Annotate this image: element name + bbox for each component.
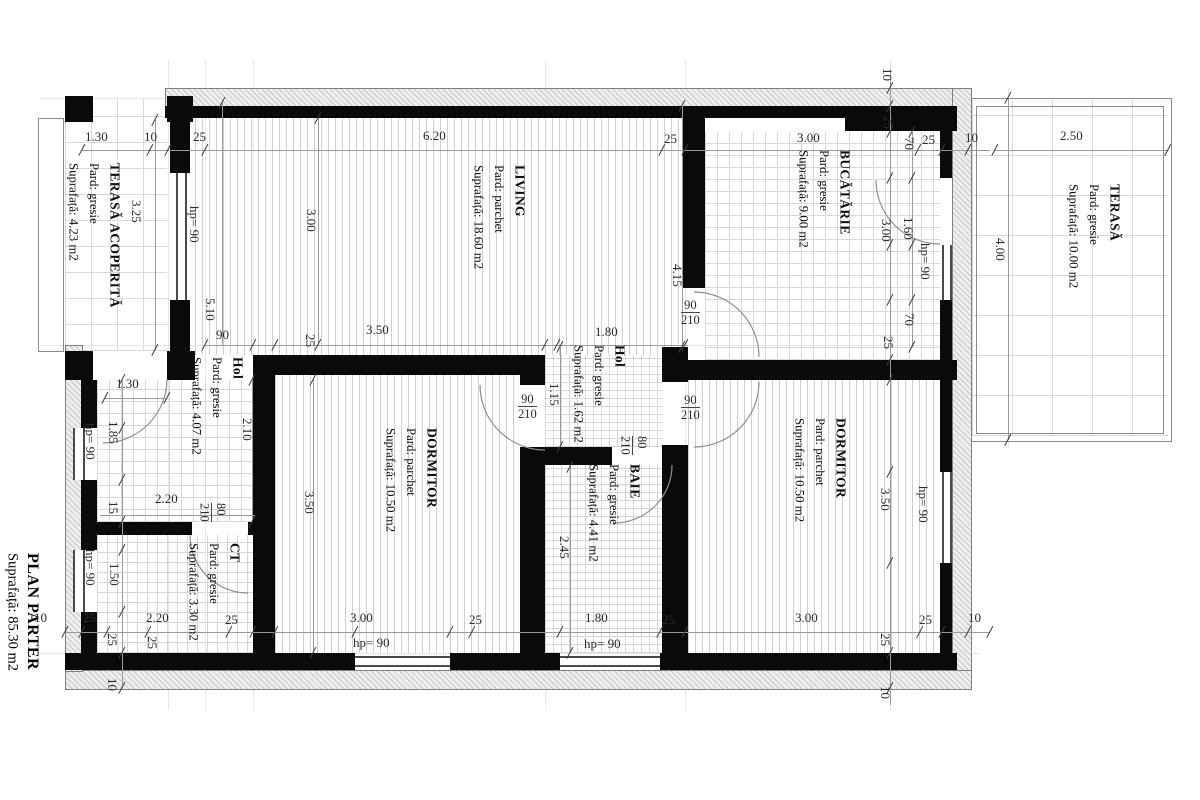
dim-tick bbox=[656, 626, 663, 638]
dim-tick bbox=[991, 144, 998, 156]
door-width: 90 bbox=[681, 393, 700, 407]
dim-label: hp= 90 bbox=[584, 637, 621, 650]
dim-label: 70 bbox=[903, 137, 916, 150]
dim-tick bbox=[908, 341, 915, 353]
dim-tick bbox=[248, 374, 255, 386]
dim-tick bbox=[916, 626, 923, 638]
dim-tick bbox=[151, 344, 158, 356]
dim-tick bbox=[681, 144, 688, 156]
dim-tick bbox=[938, 626, 945, 638]
dim-tick bbox=[118, 516, 125, 528]
dim-label: hp= 90 bbox=[919, 243, 932, 280]
dim-tick bbox=[151, 114, 158, 126]
dim-label: hp= 90 bbox=[84, 423, 97, 460]
dim-tick bbox=[681, 626, 688, 638]
dim-label: 10 bbox=[968, 611, 981, 624]
dim-tick bbox=[886, 100, 893, 112]
dim-tick bbox=[118, 606, 125, 618]
floor-plan-canvas: TERASĂ ACOPERITĂ Pard: gresie Suprafață:… bbox=[0, 0, 1200, 800]
dim-label: 70 bbox=[903, 313, 916, 326]
dim-tick bbox=[556, 626, 563, 638]
dim-tick bbox=[964, 626, 971, 638]
door-height: 210 bbox=[681, 312, 700, 327]
dim-label: 3.00 bbox=[795, 611, 818, 624]
dim-label: 1.60 bbox=[902, 217, 915, 240]
dim-tick bbox=[271, 339, 278, 351]
dim-tick bbox=[541, 339, 548, 351]
dim-tick bbox=[163, 392, 170, 404]
dim-label: 25 bbox=[919, 613, 932, 626]
dim-label: 25 bbox=[922, 133, 935, 146]
door-width: 90 bbox=[518, 392, 537, 406]
dim-tick bbox=[446, 626, 453, 638]
dim-tick bbox=[886, 354, 893, 366]
dim-label: 3.00 bbox=[305, 209, 318, 232]
dim-tick bbox=[908, 172, 915, 184]
dim-tick bbox=[78, 144, 85, 156]
dim-label: 25 bbox=[469, 613, 482, 626]
dim-tick bbox=[556, 441, 563, 453]
dim-label: 10 bbox=[144, 130, 157, 143]
dim-label: 25 bbox=[193, 130, 206, 143]
dim-tick bbox=[1004, 92, 1011, 104]
dim-label: 10 bbox=[106, 678, 119, 691]
dim-tick bbox=[118, 544, 125, 556]
dim-label: 25 bbox=[83, 611, 96, 624]
dim-tick bbox=[566, 647, 573, 659]
dim-tick bbox=[248, 516, 255, 528]
door-height: 210 bbox=[197, 503, 211, 522]
dim-label: 3.25 bbox=[130, 200, 143, 223]
dim-label: 6.20 bbox=[423, 129, 446, 142]
dim-label: 4.15 bbox=[671, 264, 684, 287]
dim-label: hp= 90 bbox=[188, 206, 201, 243]
door-size-label: 90210 bbox=[681, 298, 700, 328]
dim-label: 1.80 bbox=[585, 611, 608, 624]
dim-tick bbox=[271, 626, 278, 638]
dim-tick bbox=[658, 144, 665, 156]
dim-tick bbox=[886, 374, 893, 386]
dim-tick bbox=[566, 461, 573, 473]
dim-label: 4.00 bbox=[994, 238, 1007, 261]
dim-tick bbox=[225, 626, 232, 638]
dim-tick bbox=[886, 82, 893, 94]
dim-label: 25 bbox=[304, 334, 317, 347]
dim-label: hp= 90 bbox=[84, 549, 97, 586]
dim-label: 25 bbox=[882, 336, 895, 349]
dim-tick bbox=[78, 626, 85, 638]
door-width: 80 bbox=[632, 436, 648, 455]
dim-label: 2.45 bbox=[558, 536, 571, 559]
door-size-label: 90210 bbox=[681, 393, 700, 423]
dim-tick bbox=[938, 144, 945, 156]
dim-tick bbox=[908, 294, 915, 306]
dim-tick bbox=[1004, 434, 1011, 446]
dim-tick bbox=[164, 144, 171, 156]
door-width: 80 bbox=[211, 503, 227, 522]
dim-label: 10 bbox=[34, 611, 47, 624]
dim-tick bbox=[886, 557, 893, 569]
dim-label: 3.50 bbox=[303, 491, 316, 514]
dim-label: 3.00 bbox=[880, 219, 893, 242]
dim-tick bbox=[101, 392, 108, 404]
dim-tick bbox=[61, 626, 68, 638]
dim-label: 5.10 bbox=[204, 298, 217, 321]
door-size-label: 80210 bbox=[197, 503, 228, 522]
dim-label: 25 bbox=[879, 633, 892, 646]
dim-label: 3.50 bbox=[366, 323, 389, 336]
dim-tick bbox=[201, 339, 208, 351]
door-height: 210 bbox=[518, 406, 537, 421]
door-size-label: 90210 bbox=[518, 392, 537, 422]
dim-tick bbox=[964, 144, 971, 156]
dim-tick bbox=[908, 239, 915, 251]
dim-tick bbox=[146, 144, 153, 156]
door-height: 210 bbox=[618, 436, 632, 455]
dim-tick bbox=[201, 144, 208, 156]
dim-label: 25 bbox=[664, 132, 677, 145]
dim-tick bbox=[886, 294, 893, 306]
dim-tick bbox=[986, 626, 993, 638]
dim-label: 1.50 bbox=[108, 563, 121, 586]
dim-label: 25 bbox=[225, 613, 238, 626]
dim-tick bbox=[118, 474, 125, 486]
dim-tick bbox=[886, 647, 893, 659]
dim-label: 3.00 bbox=[350, 611, 373, 624]
dim-label: hp= 90 bbox=[917, 486, 930, 523]
dim-label: 3.00 bbox=[797, 131, 820, 144]
door-height: 210 bbox=[681, 407, 700, 422]
dim-tick bbox=[886, 466, 893, 478]
door-width: 90 bbox=[681, 298, 700, 312]
dim-label: 1.80 bbox=[595, 325, 618, 338]
dim-label: 25 bbox=[662, 613, 675, 626]
dim-label: 3.50 bbox=[879, 488, 892, 511]
dim-label: 2.20 bbox=[146, 611, 169, 624]
dim-tick bbox=[118, 647, 125, 659]
dim-tick bbox=[249, 339, 256, 351]
dim-label: 1.30 bbox=[85, 130, 108, 143]
dim-label: 1.15 bbox=[548, 383, 561, 406]
dim-label: 2.20 bbox=[155, 492, 178, 505]
dim-tick bbox=[886, 172, 893, 184]
annotations-layer: 1.3010256.20253.0025102.50903.501.801.30… bbox=[0, 0, 1200, 800]
dim-tick bbox=[218, 97, 225, 109]
dim-label: 25 bbox=[146, 636, 159, 649]
dim-tick bbox=[309, 374, 316, 386]
dim-tick bbox=[678, 100, 685, 112]
dim-label: 25 bbox=[106, 633, 119, 646]
dim-label: 15 bbox=[107, 501, 120, 514]
dim-tick bbox=[309, 647, 316, 659]
dim-tick bbox=[314, 112, 321, 124]
door-size-label: 80210 bbox=[618, 436, 649, 455]
dim-tick bbox=[1164, 144, 1171, 156]
dim-label: 90 bbox=[216, 328, 229, 341]
dim-label: 10 bbox=[881, 68, 894, 81]
dim-tick bbox=[468, 626, 475, 638]
dim-label: hp= 90 bbox=[353, 636, 390, 649]
dim-tick bbox=[249, 626, 256, 638]
dim-label: 2.10 bbox=[241, 418, 254, 441]
dim-label: 10 bbox=[965, 131, 978, 144]
dim-label: 2.50 bbox=[1060, 129, 1083, 142]
